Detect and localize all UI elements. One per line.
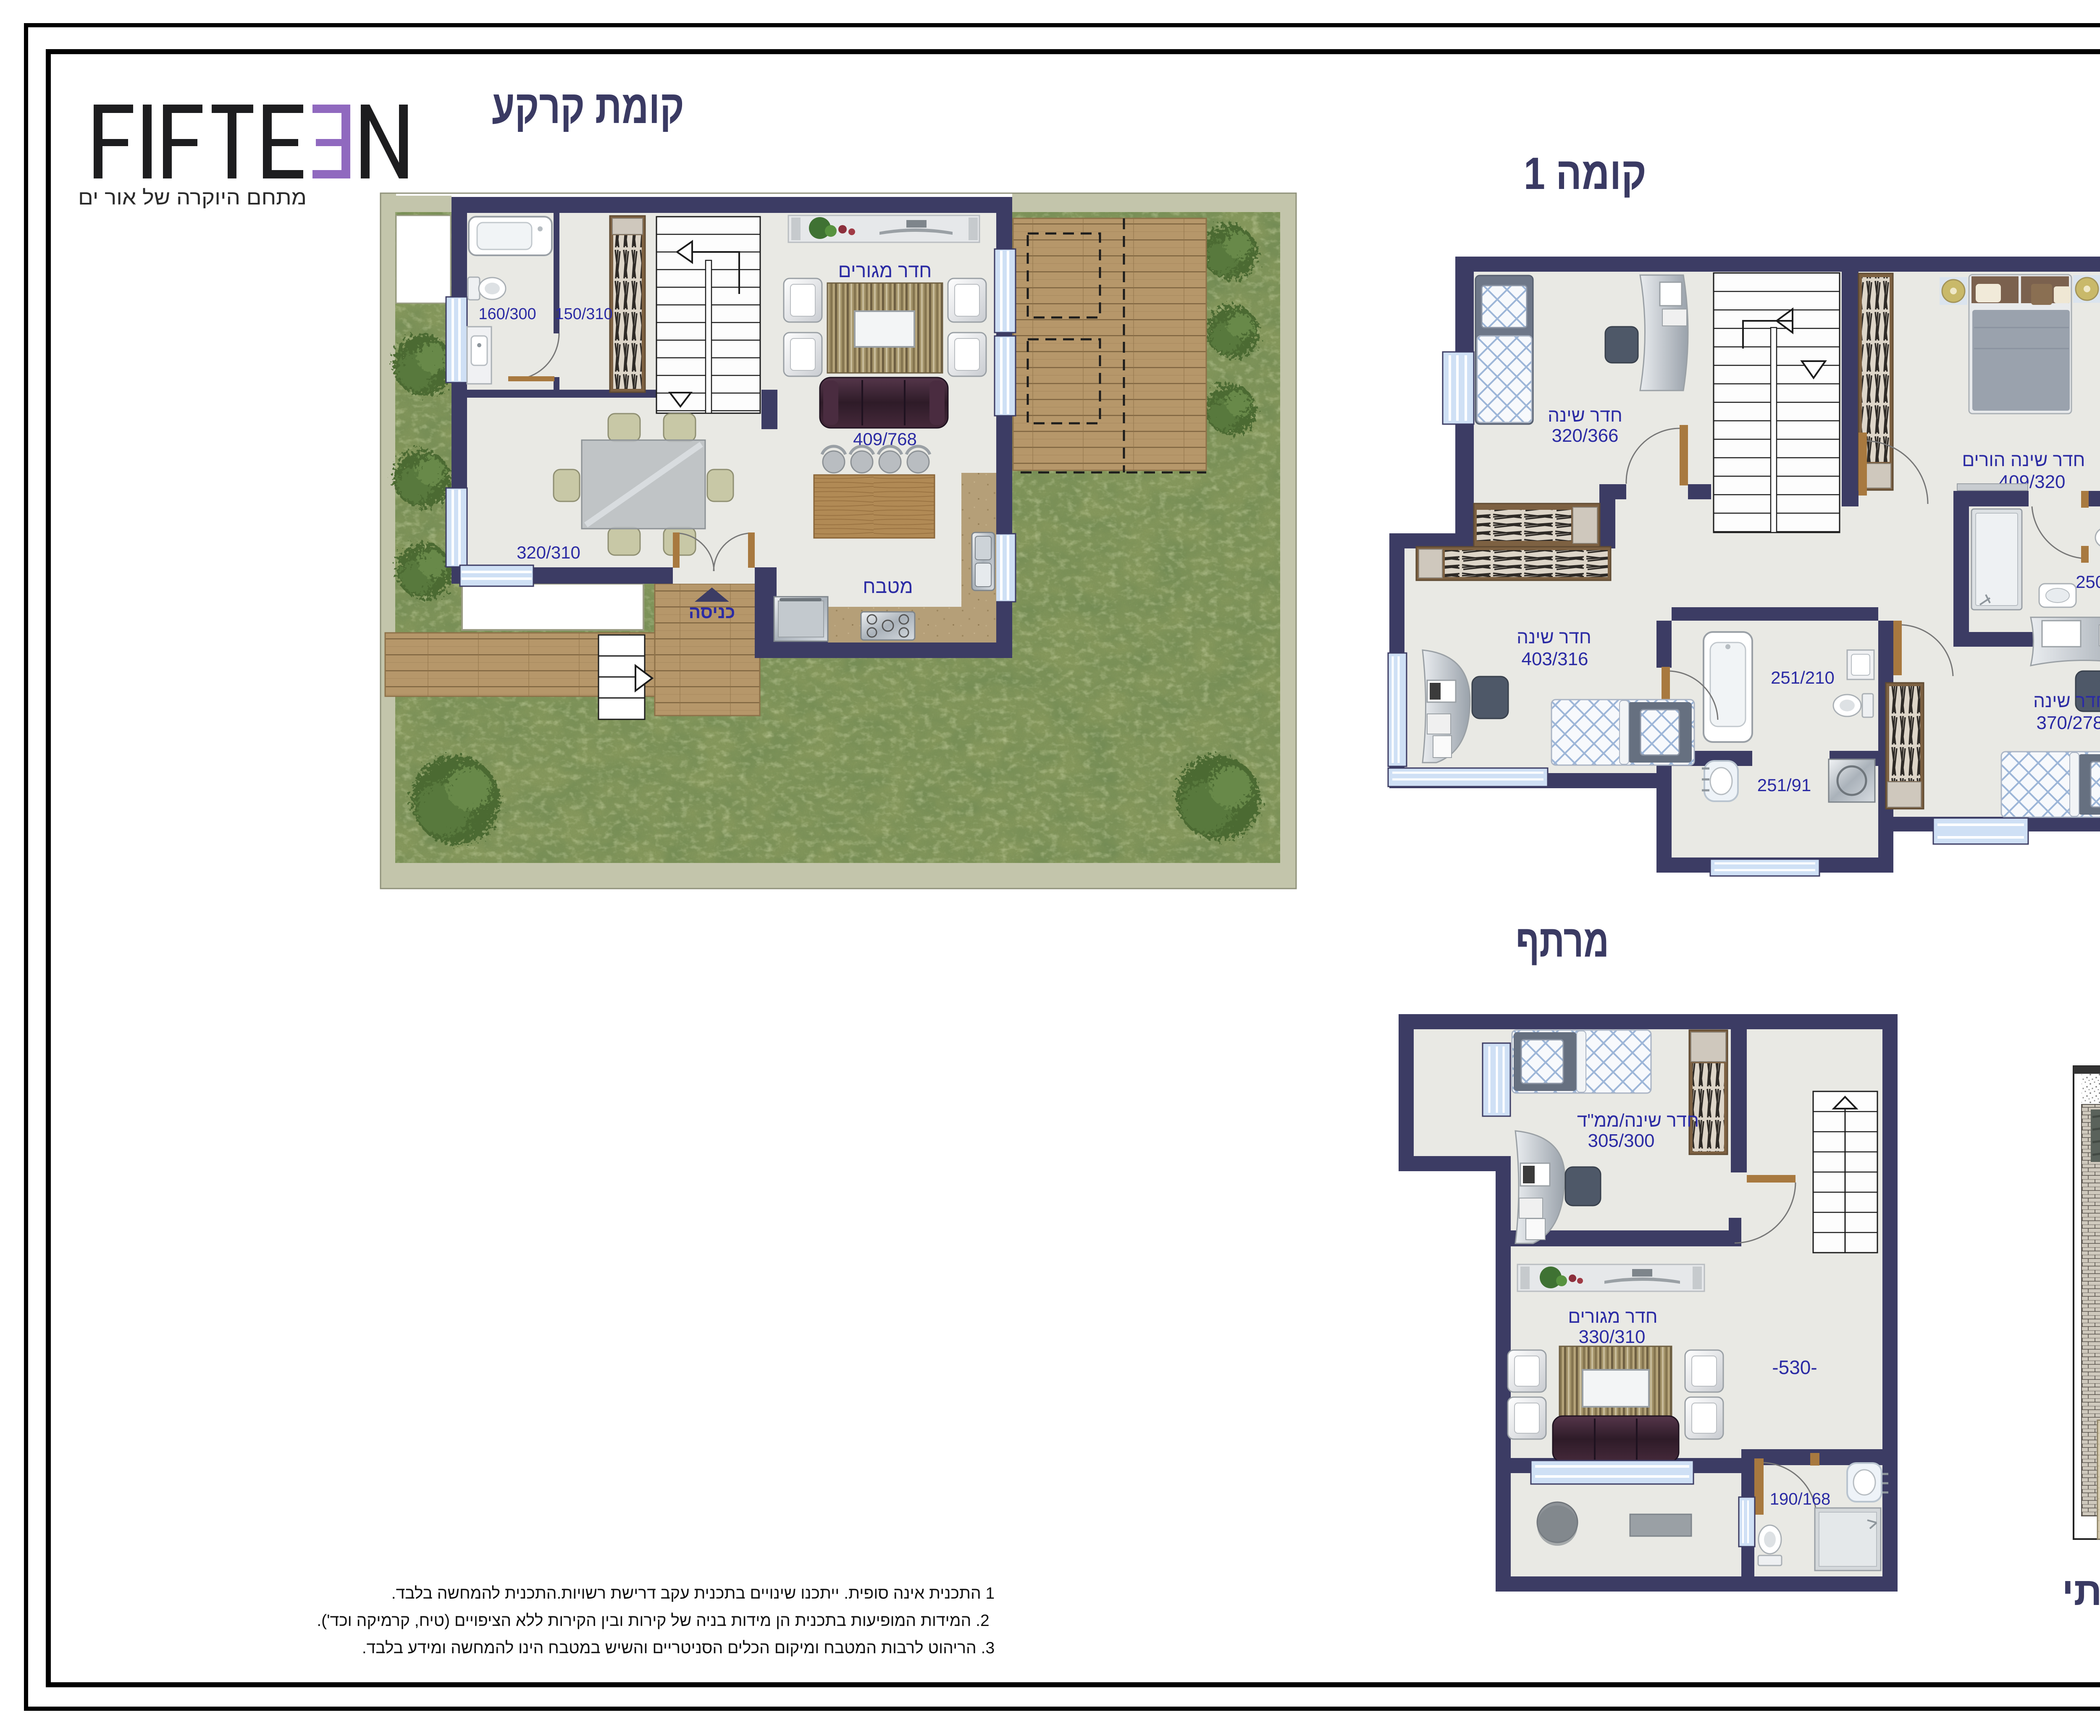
svg-text:קומת קרקע: קומת קרקע [492,81,684,133]
svg-text:כניסה: כניסה [689,602,735,622]
svg-text:חדר מגורים: חדר מגורים [838,260,932,281]
svg-text:160/300: 160/300 [478,305,536,323]
svg-text:חדר שינה הורים: חדר שינה הורים [1962,450,2085,470]
svg-text:2. המידות המופיעות בתכנית הן מ: 2. המידות המופיעות בתכנית הן מידות בניה … [317,1612,989,1630]
svg-text:חדר שינה: חדר שינה [1517,627,1591,648]
svg-text:1 התכנית אינה סופית. ייתכנו שי: 1 התכנית אינה סופית. ייתכנו שינויים בתכנ… [391,1584,995,1602]
svg-text:190/168: 190/168 [1770,1490,1831,1508]
svg-text:מטבח: מטבח [863,575,913,597]
svg-text:330/310: 330/310 [1578,1327,1645,1347]
svg-text:חדר שינה: חדר שינה [2033,691,2100,711]
svg-text:320/366: 320/366 [1551,425,1618,446]
svg-text:251/210: 251/210 [1771,668,1835,687]
svg-text:320/310: 320/310 [517,543,580,562]
svg-text:מרתף: מרתף [1516,915,1609,966]
svg-text:קוטג' טורי פינתי: קוטג' טורי פינתי [2062,1569,2100,1613]
svg-text:370/278: 370/278 [2036,713,2100,733]
svg-text:-530-: -530- [1772,1356,1817,1378]
svg-text:מתחם היוקרה של אור ים: מתחם היוקרה של אור ים [78,187,307,209]
svg-text:קומה 1: קומה 1 [1524,148,1646,199]
svg-text:חדר שינה/ממ"ד: חדר שינה/ממ"ד [1577,1110,1699,1131]
svg-text:3. הריהוט לרבות המטבח ומיקום ה: 3. הריהוט לרבות המטבח ומיקום הכלים הסניט… [362,1639,995,1657]
svg-text:250/150: 250/150 [2076,572,2100,592]
svg-text:150/310: 150/310 [555,305,612,323]
svg-text:305/300: 305/300 [1588,1130,1654,1151]
svg-text:403/316: 403/316 [1521,649,1588,669]
svg-text:חדר שינה: חדר שינה [1548,405,1622,426]
svg-text:251/91: 251/91 [1757,775,1811,795]
svg-text:חדר מגורים: חדר מגורים [1568,1306,1657,1327]
